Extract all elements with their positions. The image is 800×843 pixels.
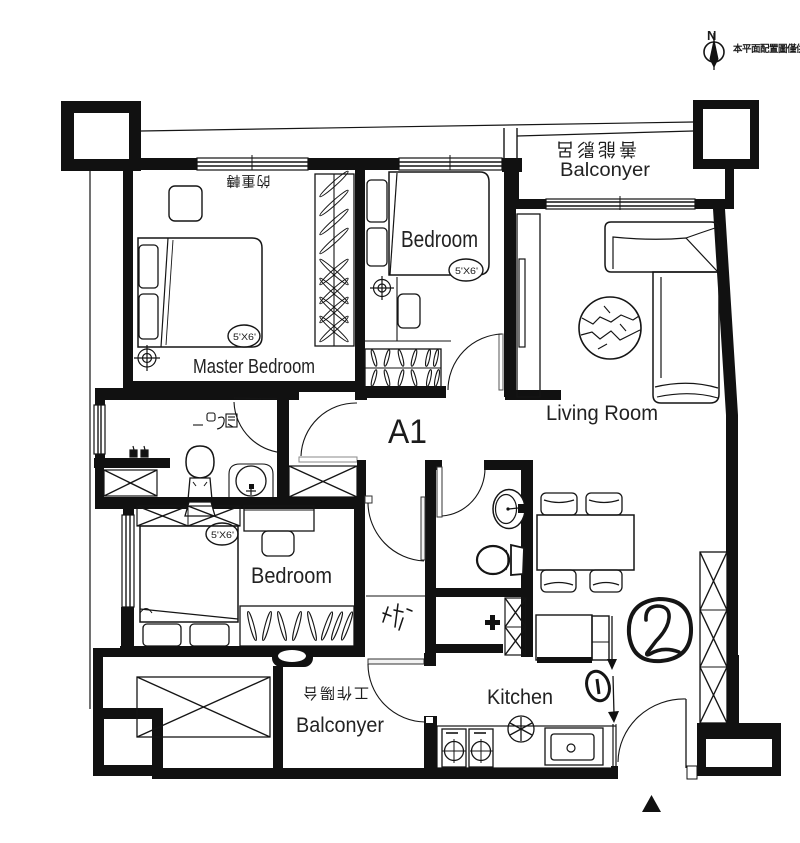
svg-text:Master Bedroom: Master Bedroom [193,356,315,378]
svg-text:Bedroom: Bedroom [401,226,478,252]
svg-text:Bedroom: Bedroom [251,563,332,588]
svg-text:Kitchen: Kitchen [487,685,553,709]
svg-text:的重轉: 的重轉 [226,173,271,189]
svg-text:5'X6': 5'X6' [233,332,256,342]
svg-text:善能影呂: 善能影呂 [553,139,637,159]
svg-text:N: N [707,28,716,43]
svg-text:A1: A1 [388,413,427,451]
svg-text:本平面配置圖僅供參考: 本平面配置圖僅供參考 [733,43,800,55]
svg-text:5'X6': 5'X6' [455,266,478,276]
svg-text:Balconyer: Balconyer [560,160,651,181]
svg-text:Living Room: Living Room [546,402,658,425]
svg-text:5'X6': 5'X6' [211,530,234,540]
svg-text:工作陽台: 工作陽台 [301,684,369,701]
svg-text:Balconyer: Balconyer [296,713,384,737]
